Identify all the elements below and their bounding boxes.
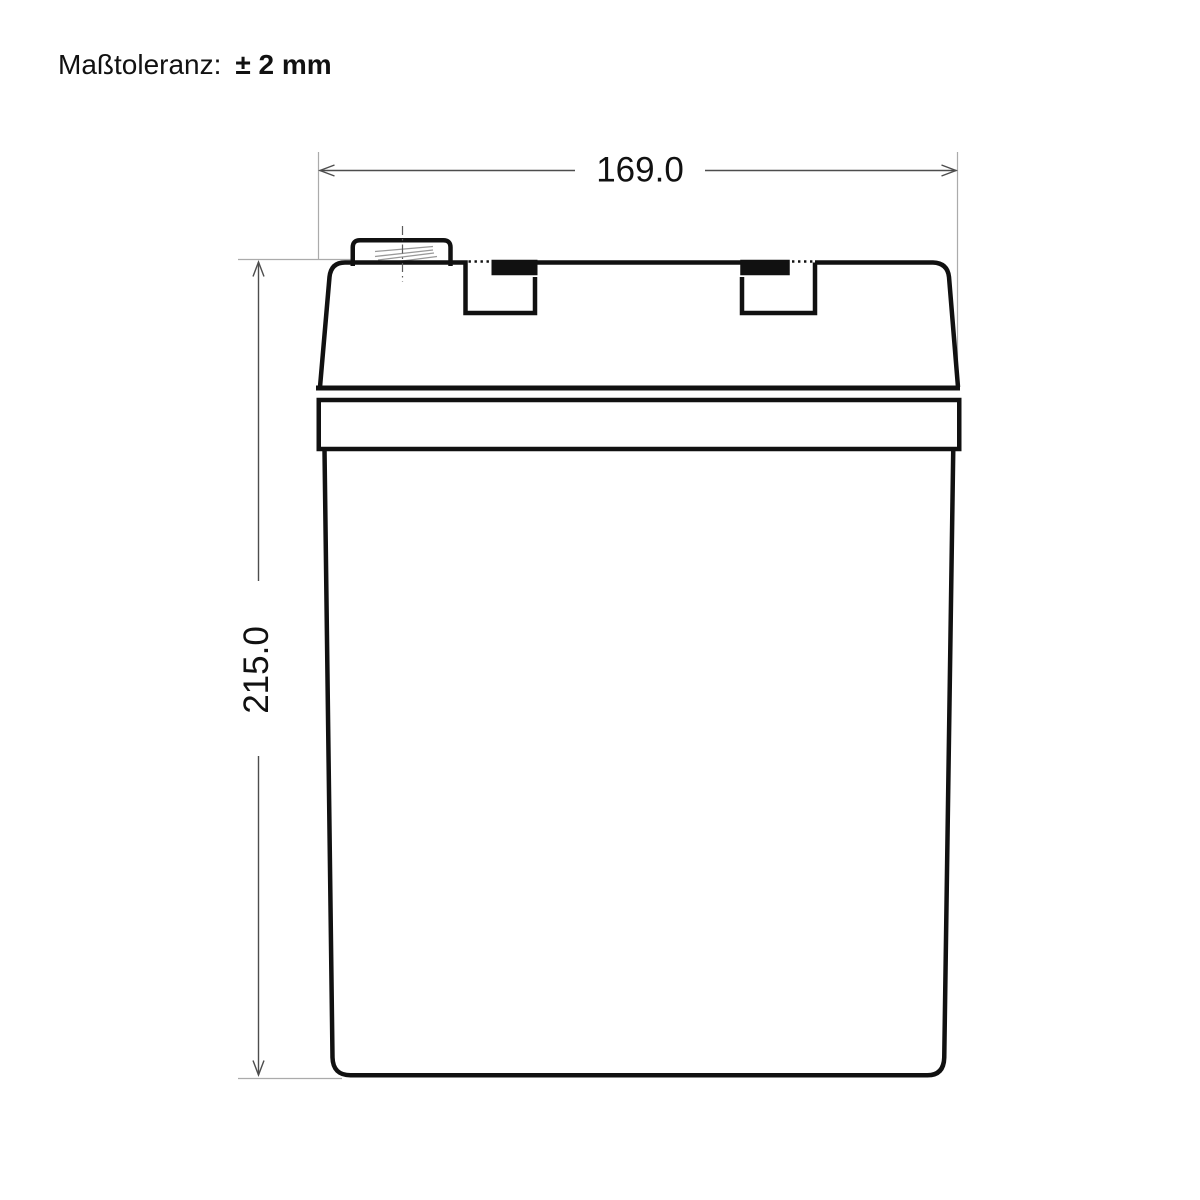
battery-lid xyxy=(320,263,958,388)
battery-band xyxy=(319,400,960,449)
drawing-page: Maßtoleranz:± 2 mm xyxy=(0,0,1200,1200)
battery-dimension-drawing: 169.0 215.0 xyxy=(0,0,1200,1200)
battery-body xyxy=(325,450,954,1076)
height-dimension-label: 215.0 xyxy=(237,626,276,714)
width-dimension-label: 169.0 xyxy=(596,151,684,190)
recess-plug-left xyxy=(492,260,538,276)
battery-outline xyxy=(316,226,960,1075)
recess-plug-right xyxy=(740,260,790,276)
